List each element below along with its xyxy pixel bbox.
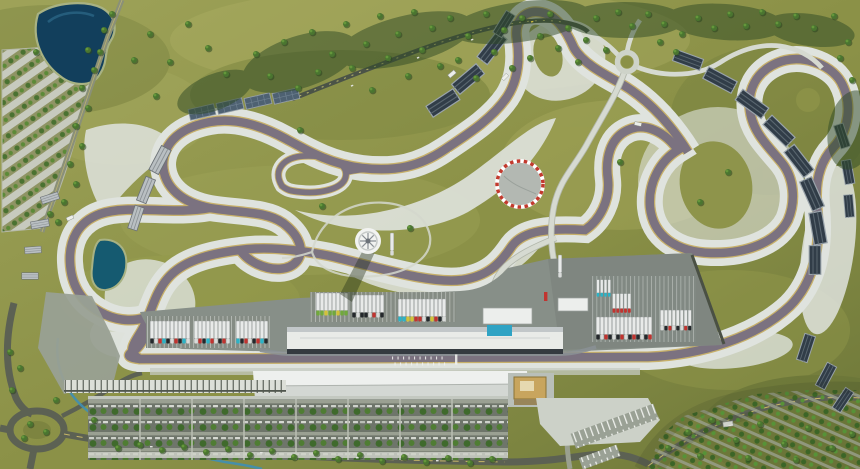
circuit-map (0, 0, 860, 469)
circuit-aerial-render (0, 0, 860, 469)
red-container (544, 292, 547, 301)
main-grandstand (253, 371, 529, 400)
helipad (497, 161, 543, 207)
fan-parking (88, 398, 508, 460)
paddock-building (558, 298, 588, 311)
pit-building (287, 327, 563, 354)
garage-row (64, 380, 286, 393)
pool (487, 325, 512, 336)
